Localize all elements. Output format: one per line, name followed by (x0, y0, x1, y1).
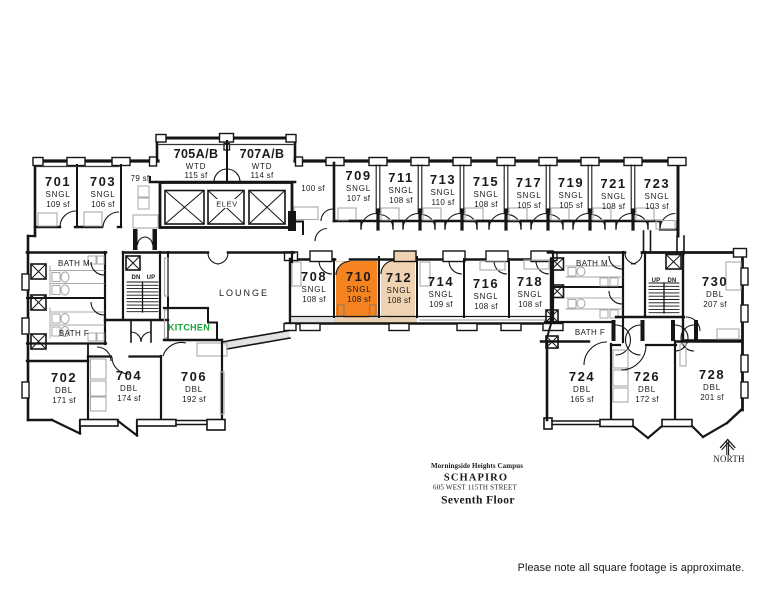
svg-text:SNGL: SNGL (46, 190, 71, 199)
svg-text:DBL: DBL (703, 383, 721, 392)
svg-text:704: 704 (116, 368, 142, 383)
svg-text:171 sf: 171 sf (52, 396, 76, 405)
svg-text:201 sf: 201 sf (700, 393, 724, 402)
svg-text:716: 716 (473, 276, 499, 291)
svg-text:BATH F: BATH F (59, 329, 89, 338)
svg-text:SNGL: SNGL (559, 191, 584, 200)
svg-text:SNGL: SNGL (645, 192, 670, 201)
svg-text:BATH M: BATH M (576, 259, 608, 268)
svg-text:109 sf: 109 sf (429, 300, 453, 309)
svg-text:Please note all square footage: Please note all square footage is approx… (518, 562, 745, 574)
svg-text:706: 706 (181, 369, 207, 384)
svg-text:717: 717 (516, 175, 542, 190)
svg-text:SNGL: SNGL (347, 285, 372, 294)
svg-text:105 sf: 105 sf (517, 201, 541, 210)
svg-text:108 sf: 108 sf (347, 295, 371, 304)
svg-text:723: 723 (644, 176, 670, 191)
svg-text:115 sf: 115 sf (185, 171, 208, 180)
svg-text:109 sf: 109 sf (46, 200, 70, 209)
svg-text:108 sf: 108 sf (474, 302, 498, 311)
svg-text:KITCHEN: KITCHEN (168, 323, 210, 333)
svg-text:174 sf: 174 sf (117, 394, 141, 403)
svg-text:LOUNGE: LOUNGE (219, 288, 269, 298)
svg-text:SNGL: SNGL (302, 285, 327, 294)
svg-text:79 sf: 79 sf (131, 174, 150, 183)
svg-text:172 sf: 172 sf (635, 395, 659, 404)
svg-text:207 sf: 207 sf (703, 300, 727, 309)
svg-text:705A/B: 705A/B (174, 147, 219, 161)
svg-text:DBL: DBL (55, 386, 73, 395)
svg-text:SNGL: SNGL (601, 192, 626, 201)
svg-text:SNGL: SNGL (387, 286, 412, 295)
svg-text:709: 709 (345, 168, 371, 183)
svg-text:701: 701 (45, 174, 71, 189)
svg-text:UP: UP (147, 275, 156, 281)
svg-text:SNGL: SNGL (474, 292, 499, 301)
svg-text:SNGL: SNGL (389, 186, 414, 195)
svg-text:SCHAPIRO: SCHAPIRO (444, 473, 508, 484)
svg-text:SNGL: SNGL (429, 290, 454, 299)
svg-text:108 sf: 108 sf (474, 200, 498, 209)
svg-text:108 sf: 108 sf (302, 295, 326, 304)
svg-text:Seventh Floor: Seventh Floor (441, 495, 515, 507)
svg-text:105 sf: 105 sf (559, 201, 583, 210)
svg-text:108 sf: 108 sf (389, 196, 413, 205)
svg-text:BATH F: BATH F (575, 328, 605, 337)
svg-text:730: 730 (702, 274, 728, 289)
svg-text:726: 726 (634, 369, 660, 384)
svg-text:106 sf: 106 sf (91, 200, 115, 209)
svg-text:605 WEST 115TH STREET: 605 WEST 115TH STREET (433, 484, 518, 492)
svg-text:DBL: DBL (706, 290, 724, 299)
svg-text:SNGL: SNGL (431, 188, 456, 197)
svg-text:724: 724 (569, 369, 595, 384)
svg-text:110 sf: 110 sf (432, 198, 455, 207)
svg-text:715: 715 (473, 174, 499, 189)
svg-text:DBL: DBL (120, 384, 138, 393)
svg-text:702: 702 (51, 370, 77, 385)
svg-text:DBL: DBL (185, 385, 203, 394)
svg-text:WTD: WTD (252, 162, 273, 171)
svg-text:714: 714 (428, 274, 454, 289)
svg-text:103 sf: 103 sf (645, 202, 669, 211)
svg-text:ELEV: ELEV (216, 200, 238, 209)
svg-text:SNGL: SNGL (518, 290, 543, 299)
svg-text:107 sf: 107 sf (347, 194, 371, 203)
svg-text:703: 703 (90, 174, 116, 189)
svg-text:SNGL: SNGL (517, 191, 542, 200)
svg-text:708: 708 (301, 269, 327, 284)
svg-text:DBL: DBL (573, 385, 591, 394)
svg-text:SNGL: SNGL (91, 190, 116, 199)
svg-text:DN: DN (131, 275, 140, 281)
svg-text:SNGL: SNGL (474, 190, 499, 199)
svg-text:711: 711 (388, 170, 413, 185)
svg-text:165 sf: 165 sf (570, 395, 594, 404)
svg-text:712: 712 (386, 270, 412, 285)
svg-text:100 sf: 100 sf (301, 184, 325, 193)
svg-text:NORTH: NORTH (713, 454, 745, 464)
svg-text:114 sf: 114 sf (251, 171, 274, 180)
svg-text:719: 719 (558, 175, 584, 190)
svg-text:707A/B: 707A/B (240, 147, 285, 161)
svg-text:108 sf: 108 sf (602, 202, 626, 211)
svg-text:SNGL: SNGL (346, 184, 371, 193)
svg-text:718: 718 (517, 274, 543, 289)
svg-text:713: 713 (430, 172, 456, 187)
svg-text:710: 710 (346, 269, 372, 284)
svg-text:DBL: DBL (638, 385, 656, 394)
svg-text:108 sf: 108 sf (387, 296, 411, 305)
svg-text:WTD: WTD (186, 162, 207, 171)
svg-text:108 sf: 108 sf (518, 300, 542, 309)
svg-text:Morningside Heights Campus: Morningside Heights Campus (431, 462, 523, 470)
svg-text:728: 728 (699, 367, 725, 382)
svg-text:BATH M: BATH M (58, 259, 90, 268)
svg-text:192 sf: 192 sf (182, 395, 206, 404)
svg-text:721: 721 (600, 176, 626, 191)
